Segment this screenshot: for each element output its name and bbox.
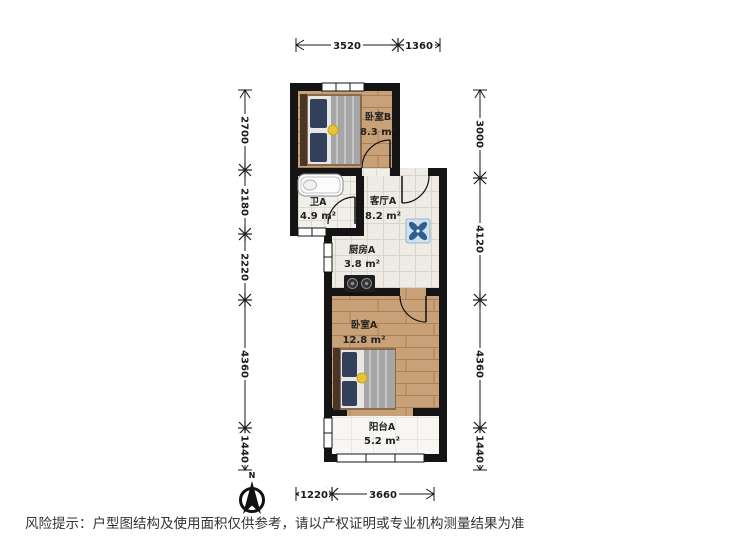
bed-pillow xyxy=(310,99,327,128)
door-gap-floor xyxy=(362,168,390,176)
dim-left-4: 4360 xyxy=(239,350,250,378)
label-kitchen-a: 厨房A xyxy=(349,244,376,256)
dimension-bottom: 1220 3660 xyxy=(296,487,434,501)
dim-left-3: 2220 xyxy=(239,253,250,281)
area-bedroom-a: 12.8 m² xyxy=(343,335,386,346)
area-bedroom-b: 8.3 m² xyxy=(360,127,396,138)
window-balcony-left xyxy=(324,418,332,448)
bed-duvet xyxy=(364,350,395,408)
bed-pillow xyxy=(310,133,327,162)
wall-bathroom-right xyxy=(356,176,364,236)
area-balcony-a: 5.2 m² xyxy=(364,436,400,447)
label-bedroom-a: 卧室A xyxy=(351,319,378,331)
window-bedroom-b xyxy=(322,83,364,91)
bed-accent-dot xyxy=(328,125,338,135)
floorplan-page: 卧室B 8.3 m² 卫A 4.9 m² 客厅A 8.2 m² 厨房A 3.8 … xyxy=(0,0,729,547)
dim-left-5: 1440 xyxy=(239,435,250,463)
dim-bottom-2: 3660 xyxy=(369,490,397,501)
bed-pillow xyxy=(342,381,357,406)
wall-mid xyxy=(390,168,400,176)
wall-right xyxy=(439,168,447,462)
bed-headboard xyxy=(300,94,307,166)
area-living-a: 8.2 m² xyxy=(365,211,401,222)
compass-needle-icon xyxy=(243,481,261,514)
compass-north-label: N xyxy=(249,471,256,480)
wall-left-upper xyxy=(290,83,298,236)
compass: N xyxy=(241,471,264,514)
bed-pillow xyxy=(342,352,357,377)
area-bathroom-a: 4.9 m² xyxy=(300,211,336,222)
label-bedroom-b: 卧室B xyxy=(365,111,391,123)
dim-left-2: 2180 xyxy=(239,188,250,216)
dim-top-1: 3520 xyxy=(333,41,361,52)
dimension-right: 3000 4120 4360 1440 xyxy=(473,90,487,470)
label-balcony-a: 阳台A xyxy=(369,421,396,433)
wall-balcony-top xyxy=(413,408,447,416)
stove xyxy=(344,275,375,292)
window-bathroom xyxy=(298,228,326,236)
window-balcony-bottom xyxy=(337,454,424,462)
dim-right-3: 4360 xyxy=(474,350,485,378)
bed-bedroom-a xyxy=(333,348,396,410)
dim-bottom-1: 1220 xyxy=(300,490,328,501)
label-bathroom-a: 卫A xyxy=(310,197,328,208)
window-kitchen xyxy=(324,243,332,272)
dim-right-2: 4120 xyxy=(474,225,485,253)
dim-top-2: 1360 xyxy=(405,41,433,52)
label-living-a: 客厅A xyxy=(369,195,397,207)
floorplan-svg: 卧室B 8.3 m² 卫A 4.9 m² 客厅A 8.2 m² 厨房A 3.8 … xyxy=(0,0,729,547)
risk-disclaimer-text: 风险提示：户型图结构及使用面积仅供参考，请以产权证明或专业机构测量结果为准 xyxy=(25,512,525,532)
dim-right-1: 3000 xyxy=(474,120,485,148)
door-gap-floor xyxy=(400,168,428,176)
dim-right-4: 1440 xyxy=(474,435,485,463)
door-gap-floor xyxy=(400,288,426,296)
dimension-left: 2700 2180 2220 4360 1440 xyxy=(238,90,252,470)
bed-bedroom-b xyxy=(300,94,362,166)
bathtub xyxy=(298,174,343,196)
dimension-top: 3520 1360 xyxy=(296,38,440,52)
area-kitchen-a: 3.8 m² xyxy=(344,259,380,270)
wall-bedrooma-top xyxy=(426,288,447,296)
bed-headboard xyxy=(333,348,340,410)
dim-left-1: 2700 xyxy=(239,116,250,144)
bed-accent-dot xyxy=(357,373,367,383)
